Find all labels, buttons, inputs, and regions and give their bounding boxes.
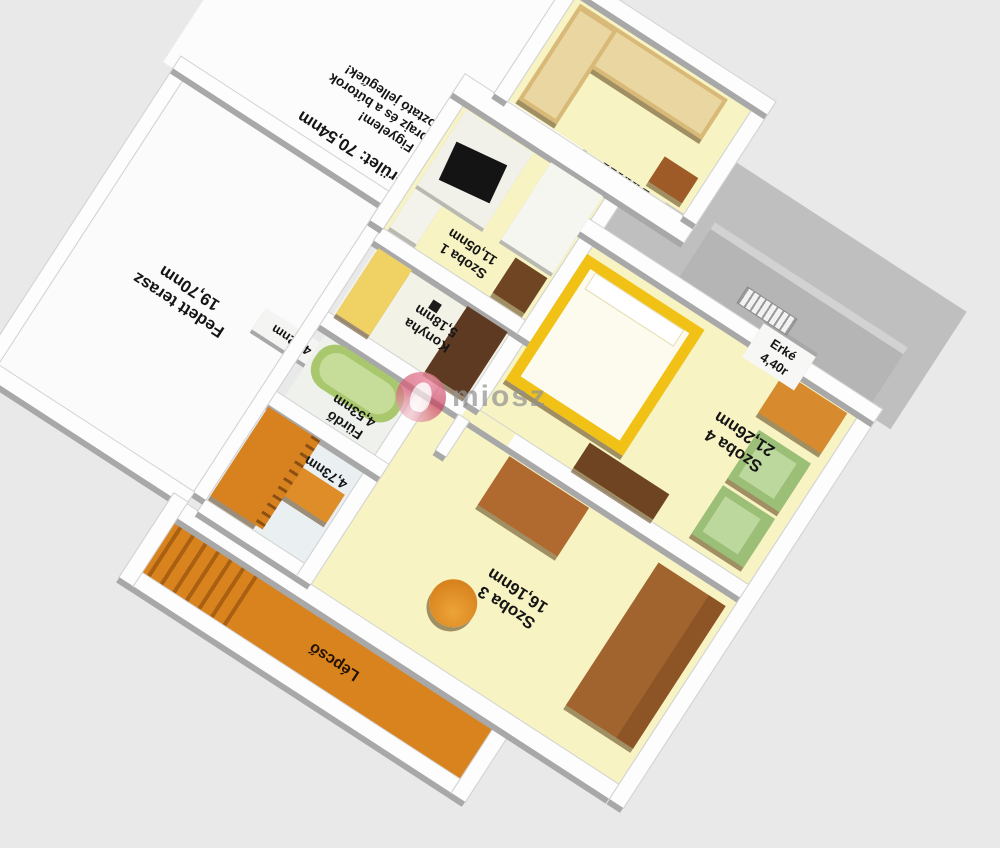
floorplan-3d-view: alapterület: 70,54nm Figyelem! Az alapra… [0, 0, 1000, 848]
watermark: miosz [396, 372, 547, 422]
watermark-text: miosz [452, 380, 547, 414]
watermark-logo-icon [396, 372, 446, 422]
floorplan-scene: alapterület: 70,54nm Figyelem! Az alapra… [0, 0, 1000, 848]
